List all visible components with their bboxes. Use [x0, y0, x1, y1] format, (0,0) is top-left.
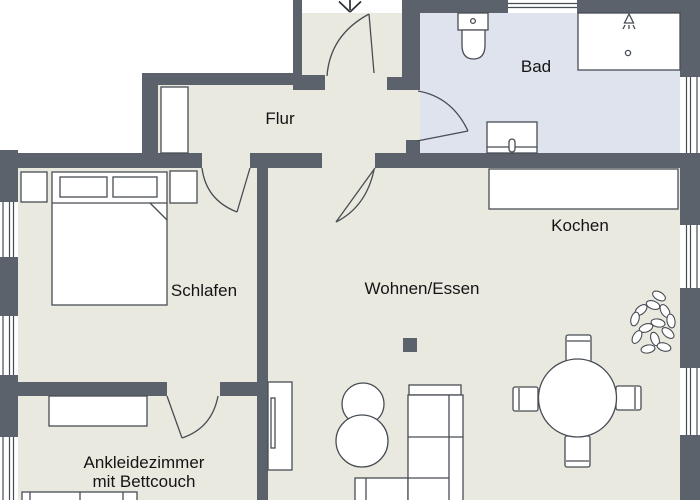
label-bad: Bad	[521, 57, 551, 76]
tv-board	[268, 382, 292, 470]
nightstand-right	[170, 171, 197, 203]
label-flur: Flur	[265, 109, 295, 128]
dresser	[49, 396, 147, 426]
window-left-2	[0, 316, 18, 375]
window-right-3	[680, 368, 700, 435]
shower	[578, 13, 680, 70]
nightstand-left	[21, 172, 47, 202]
label-ankleide-line2: mit Bettcouch	[93, 472, 196, 491]
chair-bottom	[565, 436, 590, 467]
kitchen-counter	[489, 169, 678, 209]
entrance-arrow-icon	[339, 0, 361, 12]
bed-couch	[22, 492, 137, 500]
label-ankleide-line1: Ankleidezimmer	[84, 453, 205, 472]
window-left-3	[0, 437, 18, 500]
chair-left	[513, 387, 538, 411]
chair-right	[616, 386, 641, 410]
toilet	[458, 13, 488, 59]
window-left-1	[0, 202, 18, 257]
label-schlafen: Schlafen	[171, 281, 237, 300]
label-wohnen: Wohnen/Essen	[365, 279, 480, 298]
floor-plan: Flur Bad Kochen Schlafen Wohnen/Essen An…	[0, 0, 700, 500]
dining-table	[539, 359, 617, 437]
label-kochen: Kochen	[551, 216, 609, 235]
column	[403, 338, 417, 352]
window-right-1	[680, 77, 700, 153]
pillow-right	[113, 177, 157, 197]
window-top	[508, 0, 577, 13]
pillow-left	[60, 177, 107, 197]
hall-closet	[161, 87, 188, 153]
sink-vanity	[487, 122, 537, 153]
side-table-large	[336, 415, 388, 467]
window-right-2	[680, 225, 700, 288]
chair-top	[566, 335, 591, 362]
floor-plan-canvas: Flur Bad Kochen Schlafen Wohnen/Essen An…	[0, 0, 700, 500]
